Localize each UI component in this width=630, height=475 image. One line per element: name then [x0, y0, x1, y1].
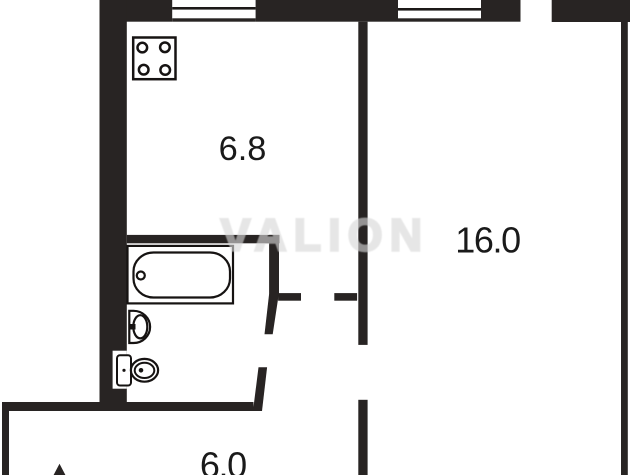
svg-text:6.0: 6.0	[200, 444, 246, 475]
svg-text:VALION: VALION	[221, 209, 430, 260]
svg-text:16.0: 16.0	[455, 220, 520, 261]
svg-text:6.8: 6.8	[219, 130, 267, 168]
